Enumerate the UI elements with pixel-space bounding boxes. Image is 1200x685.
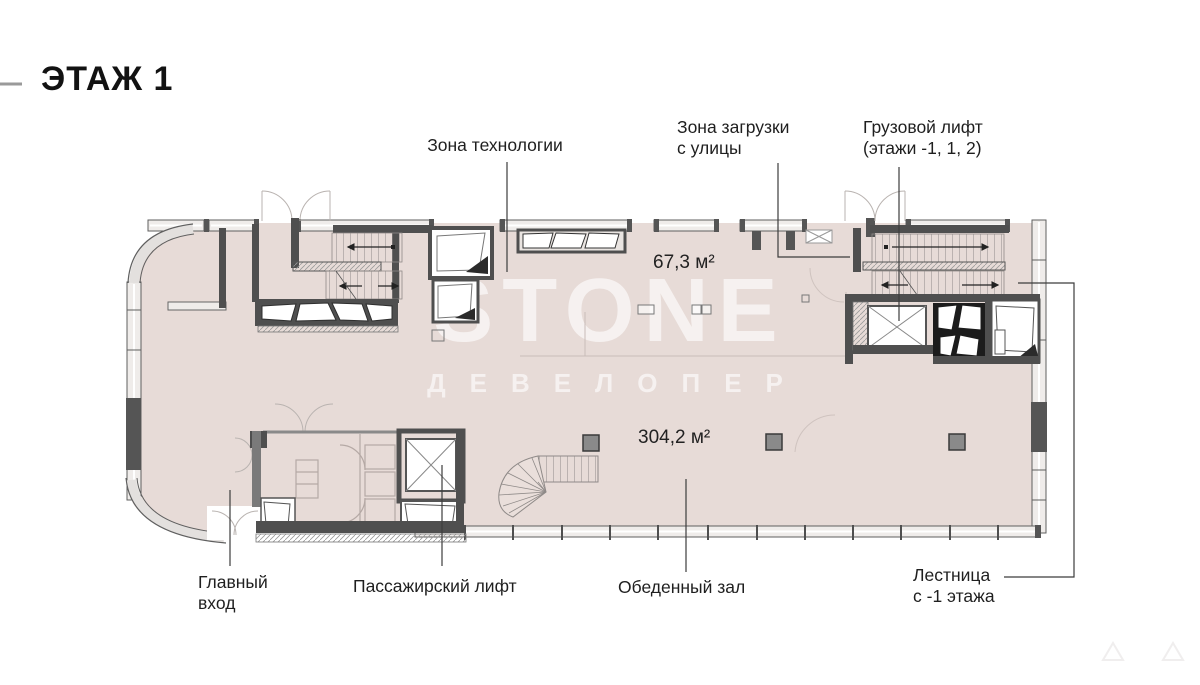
area-value-dining-hall: 304,2 м² bbox=[638, 427, 710, 449]
label-technology-zone: Зона технологии bbox=[400, 135, 590, 156]
left-staircase bbox=[168, 218, 433, 332]
floor-plan-drawing bbox=[0, 0, 1200, 685]
label-stairs-from-minus1: Лестница с -1 этажа bbox=[913, 565, 995, 606]
label-freight-elevator: Грузовой лифт (этажи -1, 1, 2) bbox=[863, 117, 983, 158]
floor-plan-page: STONE ДЕВЕЛОПЕР bbox=[0, 0, 1200, 685]
technology-zone-equipment bbox=[430, 228, 625, 341]
label-passenger-elevator: Пассажирский лифт bbox=[353, 576, 517, 597]
furniture-marks bbox=[638, 305, 711, 314]
label-dining-hall: Обеденный зал bbox=[618, 577, 745, 598]
label-loading-zone: Зона загрузки с улицы bbox=[677, 117, 789, 158]
area-value-loading-zone: 67,3 м² bbox=[653, 252, 715, 274]
spiral-staircase bbox=[499, 456, 598, 517]
right-staircase bbox=[853, 225, 1009, 299]
freight-elevator bbox=[845, 294, 1040, 364]
faint-logo-marks bbox=[1103, 643, 1183, 660]
label-main-entrance: Главный вход bbox=[198, 572, 268, 613]
page-title: ЭТАЖ 1 bbox=[41, 60, 173, 99]
passenger-elevator-block bbox=[250, 431, 466, 542]
